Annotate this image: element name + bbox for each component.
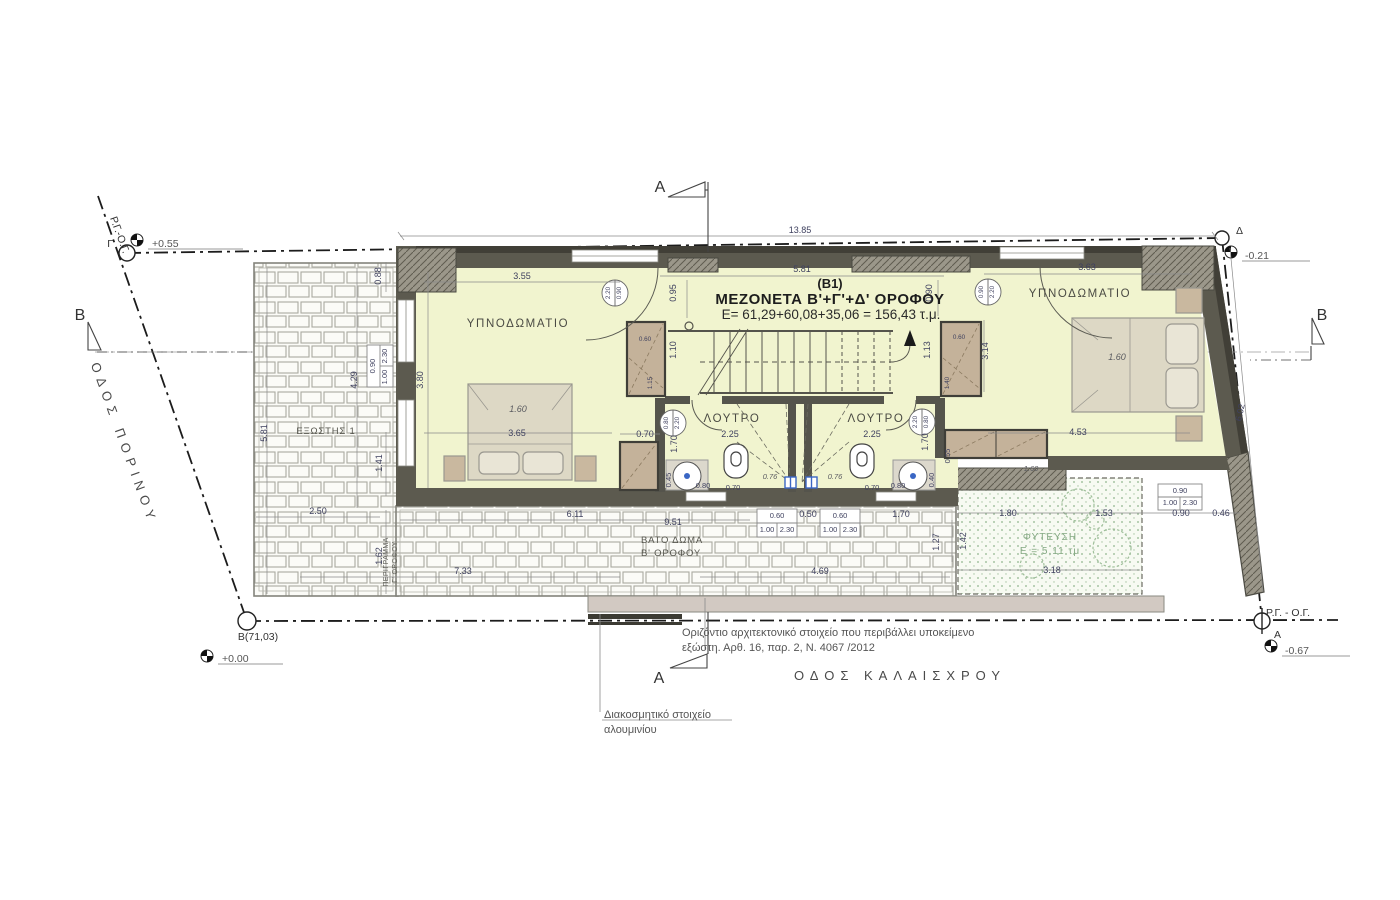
unit-area: E= 61,29+60,08+35,06 = 156,43 τ.μ. bbox=[722, 307, 941, 322]
dimension-label: 2.50 bbox=[309, 506, 327, 516]
toilet-left-icon bbox=[724, 444, 748, 478]
dimension-label: 0.60 bbox=[770, 511, 785, 520]
point-beta: Β(71,03) bbox=[238, 631, 278, 643]
dimension-label: 2.30 bbox=[1183, 498, 1198, 507]
dimension-label: 4.53 bbox=[1069, 427, 1087, 437]
dimension-label: 2.20 bbox=[989, 285, 996, 298]
dimension-label: 2.30 bbox=[843, 525, 858, 534]
unit-title: ΜΕΖΟΝΕΤΑ Β'+Γ'+Δ' ΟΡΟΦΟΥ bbox=[715, 291, 944, 308]
room-label-bedroom-right: ΥΠΝΟΔΩΜΑΤΙΟ bbox=[1029, 288, 1131, 300]
dimension-label: 3.80 bbox=[415, 371, 425, 389]
section-letter-b-right: B bbox=[1317, 307, 1328, 324]
dimension-label: 1.27 bbox=[931, 533, 941, 551]
dimension-label: 0.90 bbox=[1173, 486, 1188, 495]
dimension-label: 0.80 bbox=[663, 416, 670, 429]
deck-label-line2: Β' ΟΡΟΦΟΥ bbox=[641, 548, 701, 559]
dimension-label: 3.55 bbox=[513, 271, 531, 281]
boundary-label-right: Ρ.Γ. - Ο.Γ. bbox=[1266, 607, 1310, 619]
dimension-label: 5.81 bbox=[793, 264, 811, 274]
dimension-label: 0.80 bbox=[696, 481, 711, 490]
dimension-label: 4.69 bbox=[811, 566, 829, 576]
dimension-label: 6.11 bbox=[567, 509, 584, 519]
dimension-label: 1.60 bbox=[509, 404, 527, 414]
dimension-label: 0.88 bbox=[373, 267, 383, 285]
dimension-label: 0.90 bbox=[978, 285, 985, 298]
plan-canvas: (B1) ΜΕΖΟΝΕΤΑ Β'+Γ'+Δ' ΟΡΟΦΟΥ E= 61,29+6… bbox=[0, 0, 1400, 900]
benchmark-alpha bbox=[1265, 640, 1277, 652]
dimension-label: 0.90 bbox=[368, 359, 377, 374]
room-label-balcony: ΕΞΩΣΤΗΣ 1 bbox=[296, 426, 355, 437]
note-element-line2: εξώστη. Αρθ. 16, παρ. 2, Ν. 4067 /2012 bbox=[682, 642, 875, 654]
dimension-label: 0.70 bbox=[726, 483, 741, 492]
dimension-label: 2.30 bbox=[380, 349, 389, 364]
dimension-label: 3.14 bbox=[980, 342, 990, 360]
dimension-label: 2.20 bbox=[912, 415, 919, 428]
dimension-label: 1.40 bbox=[944, 376, 951, 389]
dimension-label: 1.53 bbox=[1095, 508, 1113, 518]
planting-label-line1: ΦΥΤΕΥΣΗ bbox=[1023, 532, 1077, 543]
dimension-label: 1.41 bbox=[374, 454, 384, 472]
dimension-label: 1.00 bbox=[823, 525, 838, 534]
dimension-label: 1.10 bbox=[668, 341, 678, 359]
deck-label-line1: ΒΑΤΟ ΔΩΜΑ bbox=[641, 535, 703, 546]
dimension-label: 7.33 bbox=[454, 566, 472, 576]
dimension-label: 0.45 bbox=[664, 473, 673, 488]
unit-code: (B1) bbox=[817, 276, 842, 291]
dimension-label: 2.25 bbox=[863, 429, 881, 439]
section-letter-a-bottom: A bbox=[654, 670, 665, 687]
room-label-bedroom-left: ΥΠΝΟΔΩΜΑΤΙΟ bbox=[467, 318, 569, 330]
dimension-label: 1.70 bbox=[669, 435, 679, 453]
level-beta: +0.00 bbox=[222, 653, 249, 665]
dimension-label: 0.60 bbox=[953, 334, 966, 341]
point-alpha: Α bbox=[1274, 629, 1281, 641]
note-aluminum-line1: Διακοσμητικό στοιχείο bbox=[604, 709, 711, 721]
dimension-label: 1.70 bbox=[892, 509, 910, 519]
dimension-label: 1.00 bbox=[1163, 498, 1178, 507]
dimension-label: 0.90 bbox=[616, 286, 623, 299]
street-name-left: ΟΔΟΣ ΠΟΡΙΝΟΥ bbox=[88, 360, 161, 526]
dimension-label: 1.70 bbox=[920, 433, 930, 451]
dimension-label: 2.20 bbox=[674, 416, 681, 429]
dimension-label: 3.63 bbox=[1078, 262, 1096, 272]
level-alpha: -0.67 bbox=[1285, 645, 1309, 657]
dimension-label: 13.85 bbox=[789, 225, 812, 235]
section-letter-b-left: B bbox=[75, 307, 86, 324]
planting-label-line2: Ε = 5,11 τμ bbox=[1020, 546, 1080, 557]
dimension-label: 0.60 bbox=[833, 511, 848, 520]
dimension-label: 0.70 bbox=[636, 429, 654, 439]
point-gamma: Γ bbox=[107, 238, 113, 250]
outline-label-line2: Γ' ΟΡΟΦΟΥ bbox=[392, 541, 399, 583]
dimension-label: 1.15 bbox=[647, 376, 654, 389]
dimension-label: 1.00 bbox=[380, 370, 389, 385]
dimension-label: 0.70 bbox=[865, 483, 880, 492]
parapet-right bbox=[1226, 452, 1264, 596]
section-letter-a-top: A bbox=[655, 179, 666, 196]
dimension-label: 9.51 bbox=[664, 517, 682, 527]
dimension-label: 2.30 bbox=[780, 525, 795, 534]
dimension-label: 1.00 bbox=[760, 525, 775, 534]
benchmark-beta bbox=[201, 650, 213, 662]
benchmark-gamma bbox=[131, 234, 143, 246]
dimension-label: 0.95 bbox=[668, 284, 678, 302]
floor-plan-drawing: (B1) ΜΕΖΟΝΕΤΑ Β'+Γ'+Δ' ΟΡΟΦΟΥ E= 61,29+6… bbox=[0, 0, 1400, 900]
point-delta: Δ bbox=[1236, 225, 1243, 237]
note-aluminum-line2: αλουμινίου bbox=[604, 724, 657, 736]
outline-label-line1: ΠΕΡΙΓΡΑΜΜΑ bbox=[383, 537, 390, 586]
street-name-bottom: ΟΔΟΣ ΚΑΛΑΙΣΧΡΟΥ bbox=[794, 668, 1006, 683]
dimension-label: 1.80 bbox=[999, 508, 1017, 518]
dimension-label: 2.25 bbox=[721, 429, 739, 439]
dimension-label: 5.81 bbox=[259, 424, 269, 442]
dimension-label: 0.80 bbox=[923, 415, 930, 428]
level-gamma: +0.55 bbox=[152, 238, 179, 250]
dimension-label: 0.40 bbox=[927, 473, 936, 488]
dimension-label: 2.20 bbox=[605, 286, 612, 299]
dimension-label: 0.55 bbox=[943, 449, 952, 464]
room-label-bath-left: ΛΟΥΤΡΟ bbox=[704, 413, 761, 425]
toilet-right-icon bbox=[850, 444, 874, 478]
dimension-label: 3.18 bbox=[1043, 565, 1061, 575]
dimension-label: 1.60 bbox=[1108, 352, 1126, 362]
dimension-label: 1.62 bbox=[374, 547, 384, 565]
level-delta: -0.21 bbox=[1245, 250, 1269, 262]
dimension-label: 4.29 bbox=[349, 371, 359, 389]
note-element-line1: Οριζόντιο αρχιτεκτονικό στοιχείο που περ… bbox=[682, 627, 974, 639]
dimension-label: 0.76 bbox=[828, 472, 843, 481]
section-marker-b-right bbox=[1250, 318, 1324, 360]
dimension-label: 0.60 bbox=[639, 336, 652, 343]
dimension-label: 0.76 bbox=[763, 472, 778, 481]
dimension-label: 1.60 bbox=[1024, 464, 1039, 473]
section-marker-b-left bbox=[88, 322, 252, 352]
dimension-label: 0.50 bbox=[799, 509, 817, 519]
dimension-label: 0.46 bbox=[1212, 508, 1230, 518]
dimension-label: 0.90 bbox=[924, 284, 934, 302]
dimension-label: 1.42 bbox=[958, 532, 968, 550]
dimension-label: 3.65 bbox=[508, 428, 526, 438]
section-marker-a-top bbox=[668, 182, 708, 252]
dimension-label: 0.80 bbox=[891, 481, 906, 490]
room-label-bath-right: ΛΟΥΤΡΟ bbox=[848, 413, 905, 425]
dimension-label: 0.90 bbox=[1172, 508, 1190, 518]
dimension-label: 1.13 bbox=[922, 341, 932, 359]
